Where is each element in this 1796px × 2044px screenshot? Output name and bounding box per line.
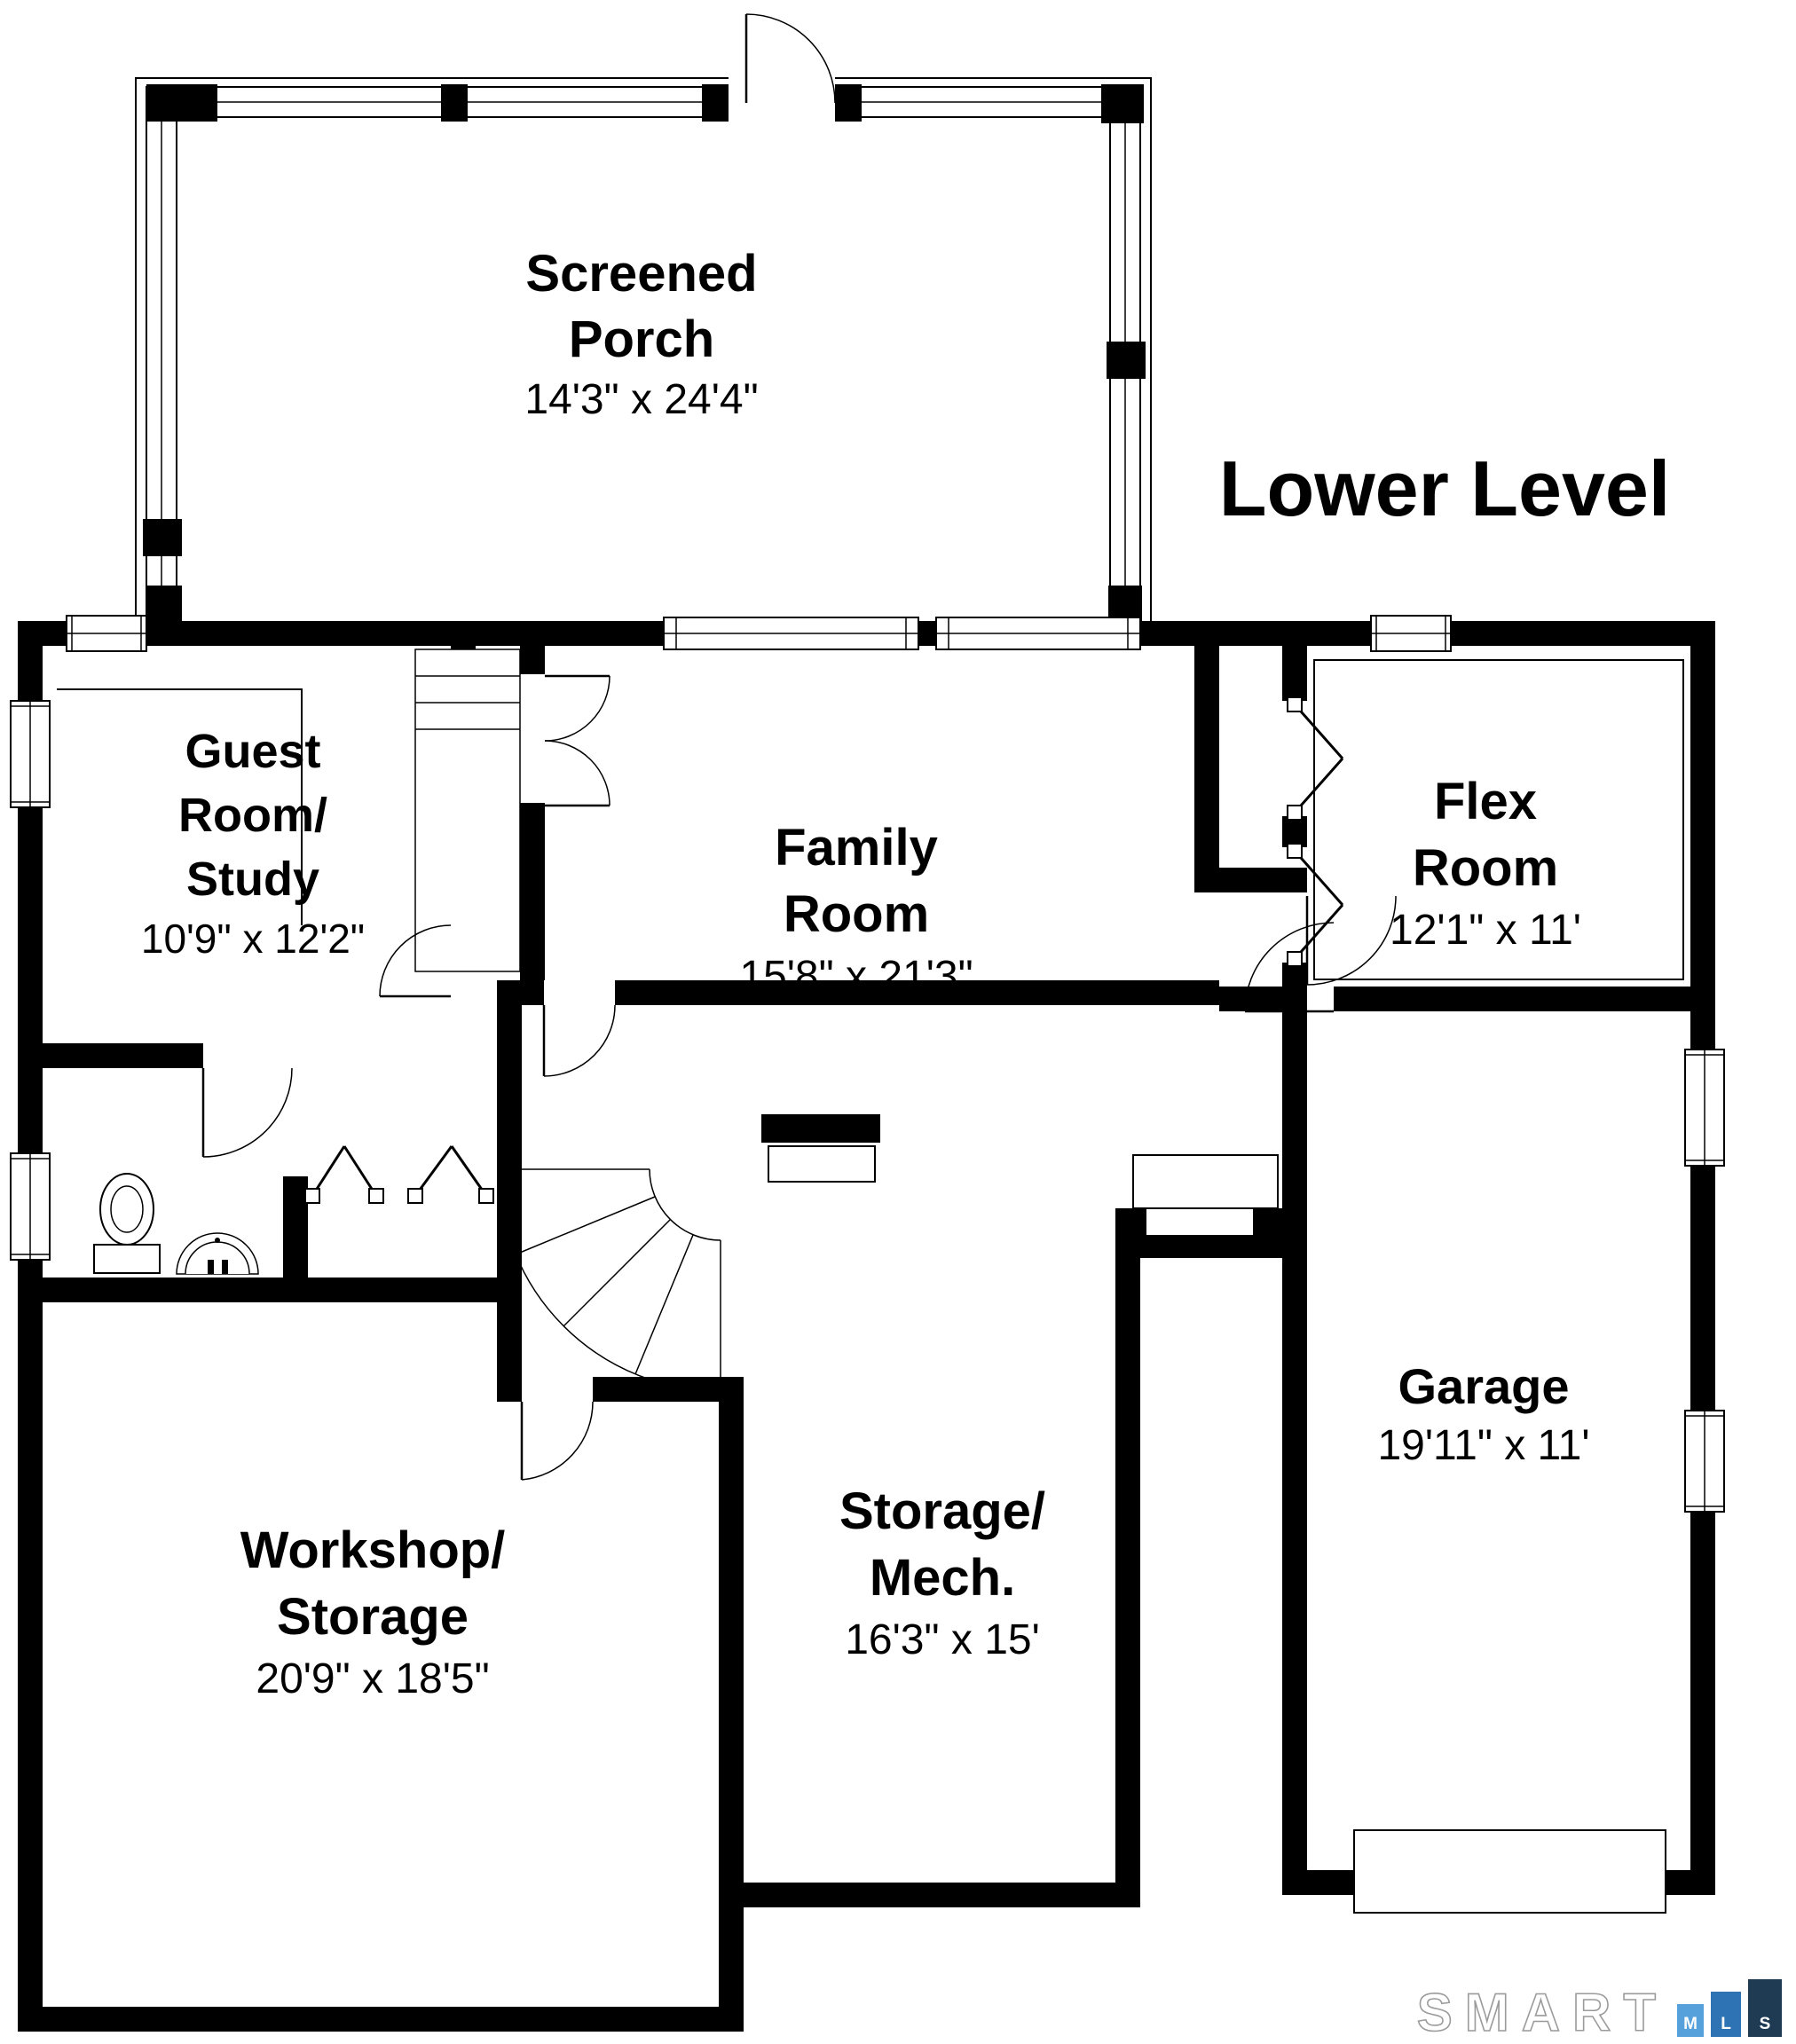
room-dims: 14'3" x 24'4" <box>375 375 908 424</box>
mls-squares: M L S <box>1677 1979 1782 2037</box>
room-dims: 20'9" x 18'5" <box>106 1655 639 1703</box>
room-name: Family Room <box>590 814 1122 948</box>
smart-mls-watermark: SMART M L S <box>1417 1979 1782 2037</box>
chase-notch <box>1146 1208 1253 1235</box>
stairs-icon <box>499 1169 721 1391</box>
room-label-garage: Garage 19'11" x 11' <box>1217 1356 1750 1470</box>
room-name: Screened Porch <box>375 241 908 372</box>
room-label-family-room: Family Room 15'8" x 21'3" <box>590 814 1122 1001</box>
room-name: Garage <box>1217 1356 1750 1418</box>
room-label-storage-mech: Storage/ Mech. 16'3" x 15' <box>676 1478 1209 1664</box>
room-name: Workshop/ Storage <box>106 1517 639 1651</box>
room-label-flex-room: Flex Room 12'1" x 11' <box>1219 768 1752 955</box>
room-name: Flex Room <box>1219 768 1752 902</box>
garage-door <box>1354 1830 1666 1913</box>
smart-logo-text: SMART <box>1417 1989 1668 2037</box>
furnace-box <box>768 1146 875 1182</box>
chase-top <box>1133 1155 1278 1208</box>
room-label-guest-room-study: Guest Room/ Study 10'9" x 12'2" <box>4 720 501 963</box>
room-dims: 15'8" x 21'3" <box>590 952 1122 1001</box>
room-name: Storage/ Mech. <box>676 1478 1209 1612</box>
floor-plan-page: Lower Level Screened Porch 14'3" x 24'4"… <box>0 0 1796 2044</box>
room-name: Guest Room/ Study <box>4 720 501 911</box>
toilet-icon <box>94 1174 160 1273</box>
room-label-screened-porch: Screened Porch 14'3" x 24'4" <box>375 241 908 424</box>
room-dims: 16'3" x 15' <box>676 1616 1209 1664</box>
room-dims: 19'11" x 11' <box>1217 1421 1750 1470</box>
mls-square-m: M <box>1677 2004 1704 2037</box>
mls-square-s: S <box>1748 1979 1782 2037</box>
porch-door-opening <box>729 76 835 122</box>
room-dims: 12'1" x 11' <box>1219 906 1752 955</box>
sink-icon <box>177 1233 258 1274</box>
room-dims: 10'9" x 12'2" <box>4 915 501 963</box>
page-title: Lower Level <box>1152 444 1737 534</box>
mls-square-l: L <box>1711 1992 1741 2037</box>
room-label-workshop-storage: Workshop/ Storage 20'9" x 18'5" <box>106 1517 639 1703</box>
